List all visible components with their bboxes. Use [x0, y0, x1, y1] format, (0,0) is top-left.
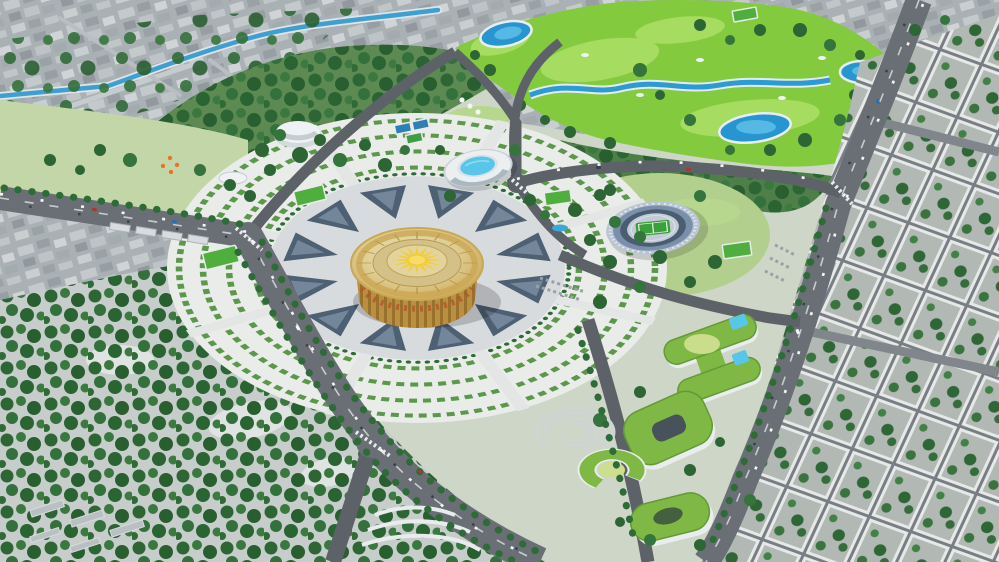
courtyard-lawn	[684, 334, 720, 354]
render-viewport	[0, 0, 999, 562]
garden-pond	[552, 225, 568, 232]
sunburst-motif	[391, 246, 443, 275]
masterplan-render	[0, 0, 999, 562]
